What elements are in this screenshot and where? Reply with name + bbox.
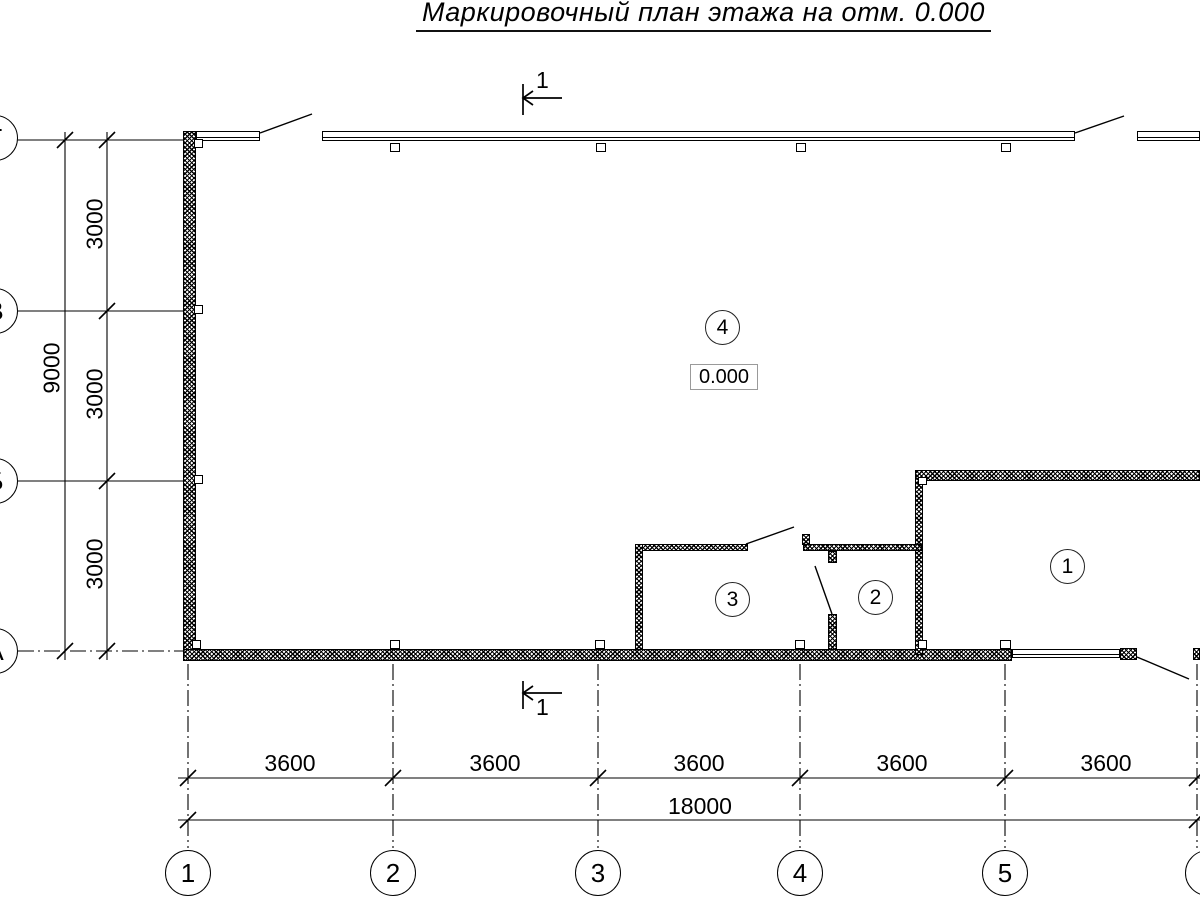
dimension-span: 3000 xyxy=(82,368,109,419)
room-number: 3 xyxy=(727,588,739,612)
axis-number: 4 xyxy=(793,858,807,889)
column-marker xyxy=(796,143,806,152)
column-marker xyxy=(192,640,201,649)
dimension-total: 9000 xyxy=(39,342,66,393)
room-tag-1: 1 xyxy=(1050,549,1085,584)
room-number: 1 xyxy=(1062,555,1074,579)
dimension-total: 18000 xyxy=(620,793,780,820)
wall-partition-stub-top xyxy=(828,551,837,563)
axis-number: 1 xyxy=(181,858,195,889)
section-label-top: 1 xyxy=(536,67,549,94)
axis-number: 2 xyxy=(386,858,400,889)
column-marker xyxy=(795,640,805,649)
column-marker xyxy=(194,139,203,148)
axis-bubble-5: 5 xyxy=(982,850,1028,896)
glazing-band-top-left xyxy=(196,131,260,141)
axis-number: 3 xyxy=(591,858,605,889)
column-marker xyxy=(595,640,605,649)
dimension-span: 3600 xyxy=(210,750,370,777)
window-band-bottom xyxy=(1012,649,1120,658)
glazing-band-top-main xyxy=(322,131,1075,141)
dimension-span: 3000 xyxy=(82,538,109,589)
column-marker xyxy=(194,475,203,484)
elevation-value: 0.000 xyxy=(699,366,749,389)
wall-room3-top xyxy=(635,544,748,551)
axis-letter: А xyxy=(0,636,4,667)
wall-partition-stub-bottom xyxy=(828,614,837,650)
room-number: 4 xyxy=(717,316,729,340)
axis-letter: Г xyxy=(0,123,2,154)
dimension-span: 3600 xyxy=(822,750,982,777)
axis-bubble-3: 3 xyxy=(575,850,621,896)
column-marker xyxy=(596,143,606,152)
elevation-mark: 0.000 xyxy=(690,364,758,390)
wall-room2-top xyxy=(803,544,922,551)
section-label-bottom: 1 xyxy=(536,694,549,721)
axis-bubble-2: 2 xyxy=(370,850,416,896)
wall-room1-left xyxy=(915,478,923,655)
wall-exterior-bottom xyxy=(183,649,1012,661)
column-marker xyxy=(1000,640,1011,649)
dimension-span: 3000 xyxy=(82,198,109,249)
wall-room2-jamb xyxy=(802,534,810,545)
wall-room3-left xyxy=(635,544,643,650)
room-tag-4: 4 xyxy=(705,310,740,345)
glazing-band-top-right xyxy=(1137,131,1200,141)
room-number: 2 xyxy=(870,586,882,610)
wall-pier-bottom-right xyxy=(1120,648,1137,660)
drawing-title: Маркировочный план этажа на отм. 0.000 xyxy=(416,0,991,32)
axis-bubble-1: 1 xyxy=(165,850,211,896)
axis-letter: В xyxy=(0,296,4,327)
axis-bubble-4: 4 xyxy=(777,850,823,896)
column-marker xyxy=(390,640,400,649)
wall-room1-top xyxy=(915,470,1200,481)
column-marker xyxy=(194,305,203,314)
column-marker xyxy=(918,640,927,649)
wall-exterior-left xyxy=(183,131,196,661)
axis-number: 5 xyxy=(998,858,1012,889)
dimension-span: 3600 xyxy=(1026,750,1186,777)
column-marker xyxy=(1001,143,1011,152)
dimension-span: 3600 xyxy=(415,750,575,777)
wall-pier-far-right xyxy=(1193,648,1200,660)
room-tag-3: 3 xyxy=(715,582,750,617)
column-marker xyxy=(390,143,400,152)
room-tag-2: 2 xyxy=(858,580,893,615)
axis-letter: Б xyxy=(0,466,4,497)
floor-plan-drawing: Маркировочный план этажа на отм. 0.000 4… xyxy=(0,0,1200,900)
column-marker xyxy=(918,477,927,485)
dimension-span: 3600 xyxy=(619,750,779,777)
